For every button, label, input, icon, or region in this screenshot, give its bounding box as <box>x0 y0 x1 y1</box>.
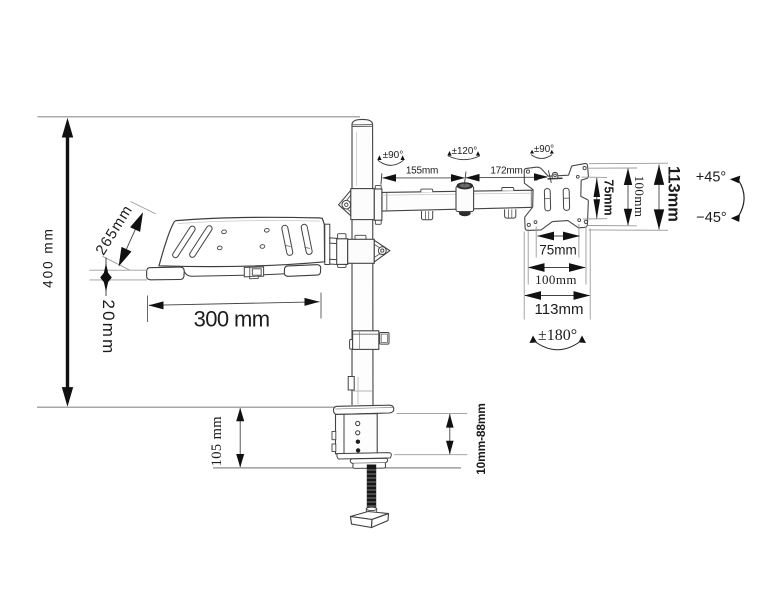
svg-text:105 mm: 105 mm <box>209 416 225 467</box>
svg-text:265mm: 265mm <box>92 202 136 259</box>
svg-text:155mm: 155mm <box>406 166 438 177</box>
svg-text:20mm: 20mm <box>99 299 118 355</box>
svg-text:75mm: 75mm <box>539 243 577 258</box>
svg-text:±120°: ±120° <box>452 146 478 157</box>
svg-text:172mm: 172mm <box>490 166 522 177</box>
svg-text:113mm: 113mm <box>665 166 683 222</box>
svg-text:113mm: 113mm <box>535 301 584 318</box>
svg-text:±90°: ±90° <box>383 150 404 161</box>
svg-text:±180°: ±180° <box>538 327 577 344</box>
svg-text:400 mm: 400 mm <box>41 227 56 288</box>
svg-text:100mm: 100mm <box>632 176 647 218</box>
svg-text:10mm-88mm: 10mm-88mm <box>474 403 488 475</box>
svg-text:+45°: +45° <box>696 170 726 186</box>
svg-text:300 mm: 300 mm <box>194 306 270 331</box>
svg-text:−45°: −45° <box>696 210 726 226</box>
svg-text:75mm: 75mm <box>602 179 616 215</box>
svg-text:100mm: 100mm <box>535 272 577 287</box>
